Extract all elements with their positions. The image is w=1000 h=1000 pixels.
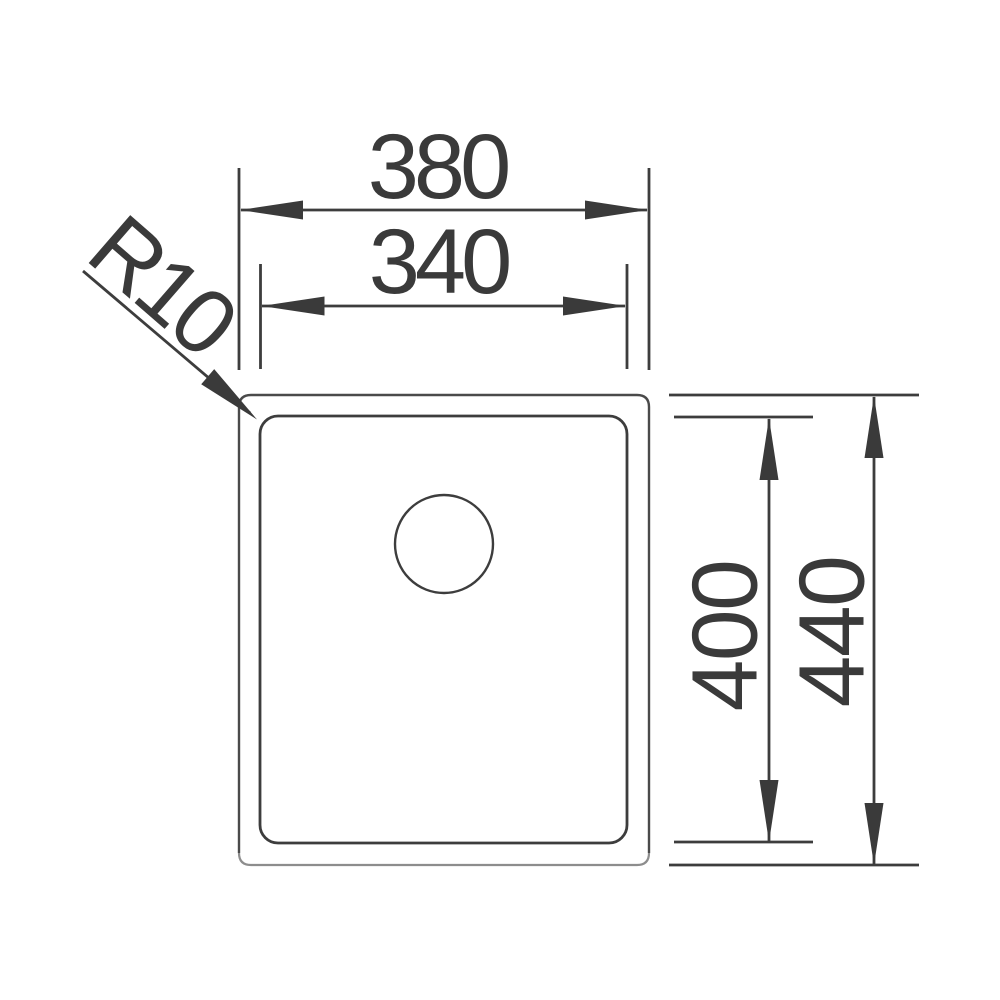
svg-text:340: 340 <box>369 211 509 313</box>
svg-text:440: 440 <box>780 557 884 708</box>
svg-text:400: 400 <box>673 561 777 712</box>
svg-text:380: 380 <box>368 116 508 218</box>
